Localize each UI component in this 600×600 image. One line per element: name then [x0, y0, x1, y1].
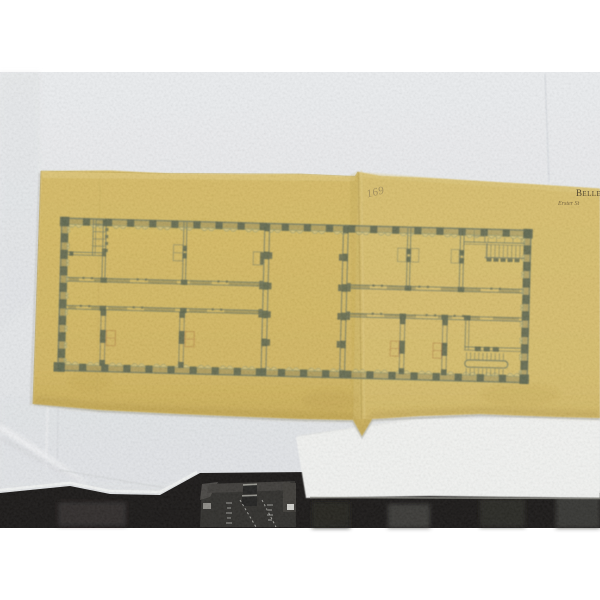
svg-text:Erster St: Erster St [557, 201, 580, 207]
svg-text:BELLEVUE: BELLEVUE [576, 188, 600, 198]
